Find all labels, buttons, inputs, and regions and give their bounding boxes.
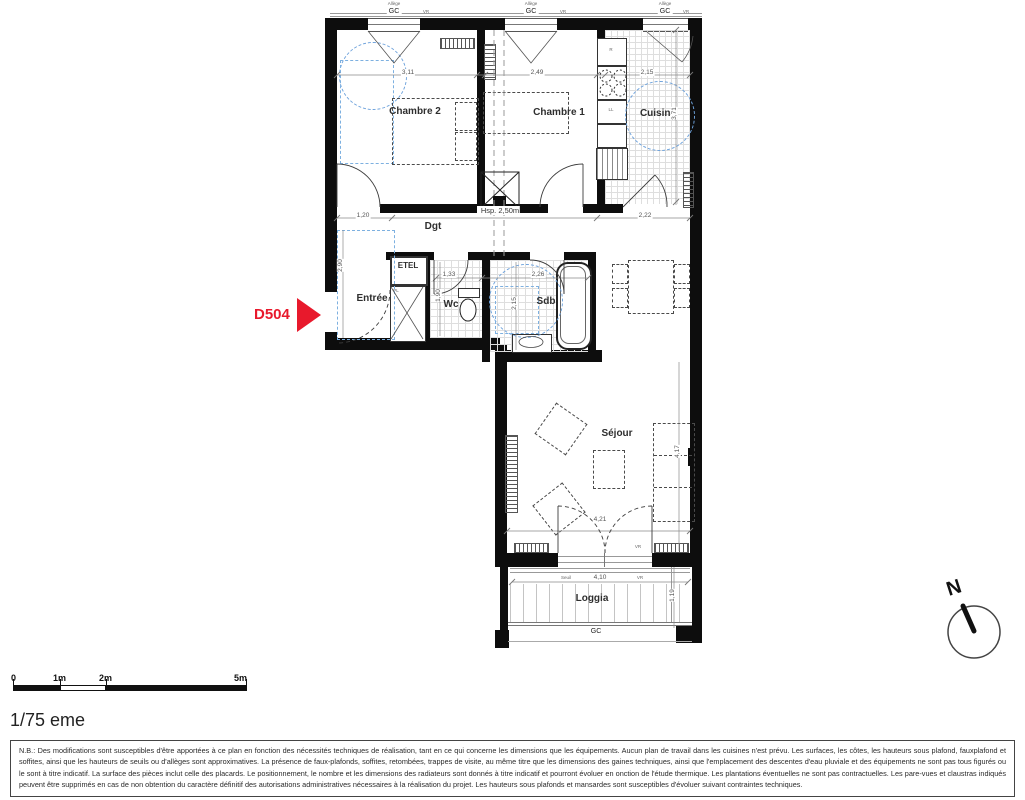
dim-chambre2-width: 3,11 bbox=[401, 69, 415, 76]
sideboard-shelf bbox=[654, 487, 692, 488]
pillow bbox=[455, 132, 477, 161]
room-label-entree: Entrée bbox=[356, 293, 387, 304]
dim-sejour-width: 4,21 bbox=[593, 516, 608, 523]
disclaimer-note: N.B.: Des modifications sont susceptible… bbox=[10, 740, 1015, 797]
loggia-rail-line bbox=[508, 622, 692, 623]
wall-segment bbox=[652, 553, 702, 567]
room-label-wc: Wc bbox=[444, 299, 459, 310]
chair bbox=[674, 264, 690, 284]
loggia-threshold-line bbox=[510, 568, 690, 569]
seuil-label: Seuil bbox=[561, 575, 571, 580]
french-door-arc bbox=[605, 506, 652, 553]
north-circle-icon bbox=[948, 606, 1000, 658]
chair bbox=[612, 288, 628, 308]
chair bbox=[674, 288, 690, 308]
allege-label: Allège bbox=[388, 1, 401, 6]
placard-closet bbox=[390, 286, 426, 342]
ceiling-height-label: Hsp. 2,50m bbox=[480, 206, 520, 215]
guardrail-label: GC bbox=[658, 8, 673, 15]
room-label-dgt: Dgt bbox=[425, 221, 442, 232]
dining-table bbox=[628, 260, 674, 314]
fridge-label: R bbox=[609, 47, 612, 52]
radiator bbox=[484, 44, 496, 80]
radiator bbox=[514, 543, 549, 553]
toilet-tank bbox=[458, 288, 480, 298]
dim-degagement-right: 2,22 bbox=[638, 212, 653, 219]
shutter-label: VR bbox=[637, 575, 643, 580]
wall-segment bbox=[495, 553, 558, 567]
dim-loggia-depth: 1,19 bbox=[669, 589, 676, 602]
threshold-line bbox=[558, 556, 652, 557]
room-label-chambre2: Chambre 2 bbox=[389, 106, 441, 117]
dim-cuisine-width: 2,15 bbox=[640, 69, 655, 76]
coffee-table bbox=[593, 450, 625, 489]
armchair bbox=[535, 403, 588, 456]
dim-wc-width: 1,33 bbox=[442, 271, 457, 278]
dim-entree-depth: 2,90 bbox=[337, 259, 344, 272]
loggia-threshold-line bbox=[510, 572, 690, 573]
ceiling-zone bbox=[340, 60, 394, 164]
scale-segment-white bbox=[60, 685, 106, 691]
door-arc-chambre2 bbox=[337, 164, 380, 207]
sideboard bbox=[653, 423, 695, 522]
washer-box bbox=[597, 100, 627, 124]
radiator bbox=[683, 172, 694, 208]
guardrail-label: GC bbox=[524, 8, 539, 15]
shutter-label: VR bbox=[635, 544, 641, 549]
radiator bbox=[505, 435, 518, 513]
cooktop-box bbox=[597, 66, 627, 100]
scale-segment-black bbox=[13, 685, 60, 691]
scale-segment-black bbox=[106, 685, 247, 691]
threshold-tick bbox=[604, 553, 605, 567]
etel-label: ETEL bbox=[398, 261, 418, 270]
scale-ratio-label: 1/75 eme bbox=[10, 710, 85, 731]
guardrail-label: GC bbox=[387, 8, 402, 15]
room-label-loggia: Loggia bbox=[576, 593, 609, 604]
kitchen-sink bbox=[596, 148, 628, 180]
guardrail-label: GC bbox=[589, 628, 604, 635]
wall-segment bbox=[420, 18, 505, 30]
dim-sdb-depth: 2,15 bbox=[511, 297, 518, 310]
radiator bbox=[654, 543, 689, 553]
construction-line bbox=[330, 16, 702, 17]
floor-plan-page: GC GC GC Allège Allège Allège VR VR VR R… bbox=[0, 0, 1025, 800]
dim-sdb-width: 2,26 bbox=[531, 271, 546, 278]
dim-sejour-depth: 4,17 bbox=[674, 445, 681, 458]
loggia-edge-line bbox=[508, 641, 692, 642]
wall-segment bbox=[380, 204, 477, 213]
wall-segment bbox=[495, 630, 509, 648]
door-arc-chambre1 bbox=[540, 164, 583, 207]
oven-box bbox=[597, 124, 627, 148]
room-label-sejour: Séjour bbox=[601, 428, 632, 439]
room-label-sdb: Sdb bbox=[537, 296, 556, 307]
wall-segment bbox=[692, 567, 702, 625]
north-needle-icon bbox=[963, 606, 974, 631]
north-label: N bbox=[944, 575, 965, 601]
allege-label: Allège bbox=[525, 1, 538, 6]
room-label-chambre1: Chambre 1 bbox=[533, 107, 585, 118]
unit-number-label: D504 bbox=[254, 306, 290, 323]
pillow bbox=[455, 102, 477, 131]
wall-segment bbox=[325, 18, 337, 292]
ceiling-zone bbox=[495, 286, 539, 334]
shutter-label: VR bbox=[683, 9, 689, 14]
loggia-rail-line bbox=[508, 625, 692, 626]
threshold-line bbox=[558, 562, 652, 563]
dim-degagement-left: 1,20 bbox=[356, 212, 371, 219]
bathtub-inner bbox=[560, 266, 586, 344]
shutter-label: VR bbox=[423, 9, 429, 14]
window bbox=[368, 18, 420, 32]
dim-loggia-width: 4,10 bbox=[593, 574, 608, 581]
ceiling-zone bbox=[337, 230, 395, 340]
shutter-label: VR bbox=[560, 9, 566, 14]
window bbox=[505, 18, 557, 32]
chair bbox=[612, 264, 628, 284]
allege-label: Allège bbox=[659, 1, 672, 6]
fridge-box bbox=[597, 38, 627, 66]
armchair bbox=[532, 482, 585, 535]
wall-segment bbox=[583, 204, 623, 213]
dim-chambre1-width: 2,49 bbox=[530, 69, 545, 76]
entrance-arrow-icon bbox=[297, 298, 321, 332]
dim-cuisine-depth: 3,71 bbox=[671, 107, 678, 120]
wall-segment bbox=[468, 252, 530, 260]
washer-label: LL bbox=[608, 107, 613, 112]
wall-segment bbox=[557, 18, 643, 30]
dim-wc-depth: 1,90 bbox=[435, 289, 442, 302]
radiator bbox=[440, 38, 475, 49]
